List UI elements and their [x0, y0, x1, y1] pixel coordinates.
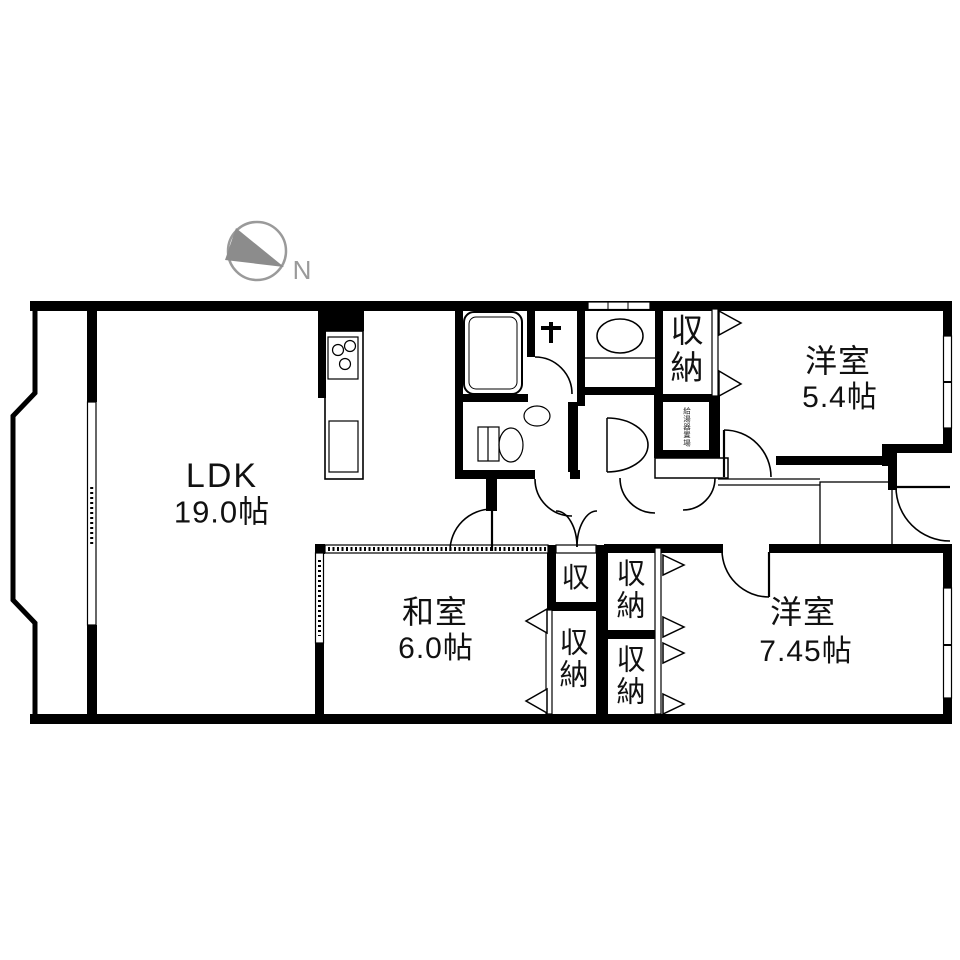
bedroom-small-label: 洋室 [805, 345, 871, 377]
bath-door [535, 357, 572, 394]
hall-door [683, 478, 715, 510]
hall-closet-label: 収 [561, 564, 590, 592]
entrance-area [655, 458, 892, 546]
floor-plan-drawing [0, 0, 960, 960]
utility-closet-door-bottom [607, 445, 648, 472]
kitchen-counter [325, 331, 363, 479]
utility-box-label: 給湯器置場 [683, 407, 692, 446]
ldk-label: LDK [186, 459, 258, 493]
hall-closet-door-left [556, 511, 577, 547]
toilet-bowl [499, 428, 523, 462]
shoe-cabinet [655, 458, 728, 478]
mid-closet-lower-label: 収納 [615, 645, 648, 710]
bedroom-small-door [724, 430, 771, 477]
hand-basin [524, 406, 550, 426]
hall-closet-door-right [577, 511, 597, 547]
floor-plan: N LDK 19.0帖 和室 6.0帖 洋室 5.4帖 洋室 7.45帖 収納 … [0, 0, 960, 960]
balcony-fence [13, 306, 88, 719]
utility-closet-door-top [607, 418, 648, 445]
compass-icon [225, 222, 286, 280]
bedroom-large-door [722, 550, 769, 597]
closet-top-right-label: 収納 [668, 313, 706, 387]
entrance-door [896, 487, 950, 541]
ldk-size-label: 19.0帖 [174, 497, 270, 528]
kitchen-sink [329, 421, 358, 472]
mid-closet-upper-label: 収納 [615, 559, 648, 624]
bedroom-large-size-label: 7.45帖 [759, 637, 852, 667]
north-label: N [293, 257, 312, 283]
washitsu-closet-label: 収納 [558, 628, 591, 693]
wash-basin [597, 319, 643, 353]
washroom-door [620, 478, 655, 513]
bedroom-large-label: 洋室 [770, 596, 836, 628]
washitsu-size-label: 6.0帖 [398, 634, 474, 664]
bathtub [464, 312, 522, 394]
toilet-door [535, 479, 572, 516]
washitsu-label: 和室 [402, 596, 468, 628]
bedroom-small-size-label: 5.4帖 [802, 383, 878, 413]
stove [328, 337, 358, 379]
